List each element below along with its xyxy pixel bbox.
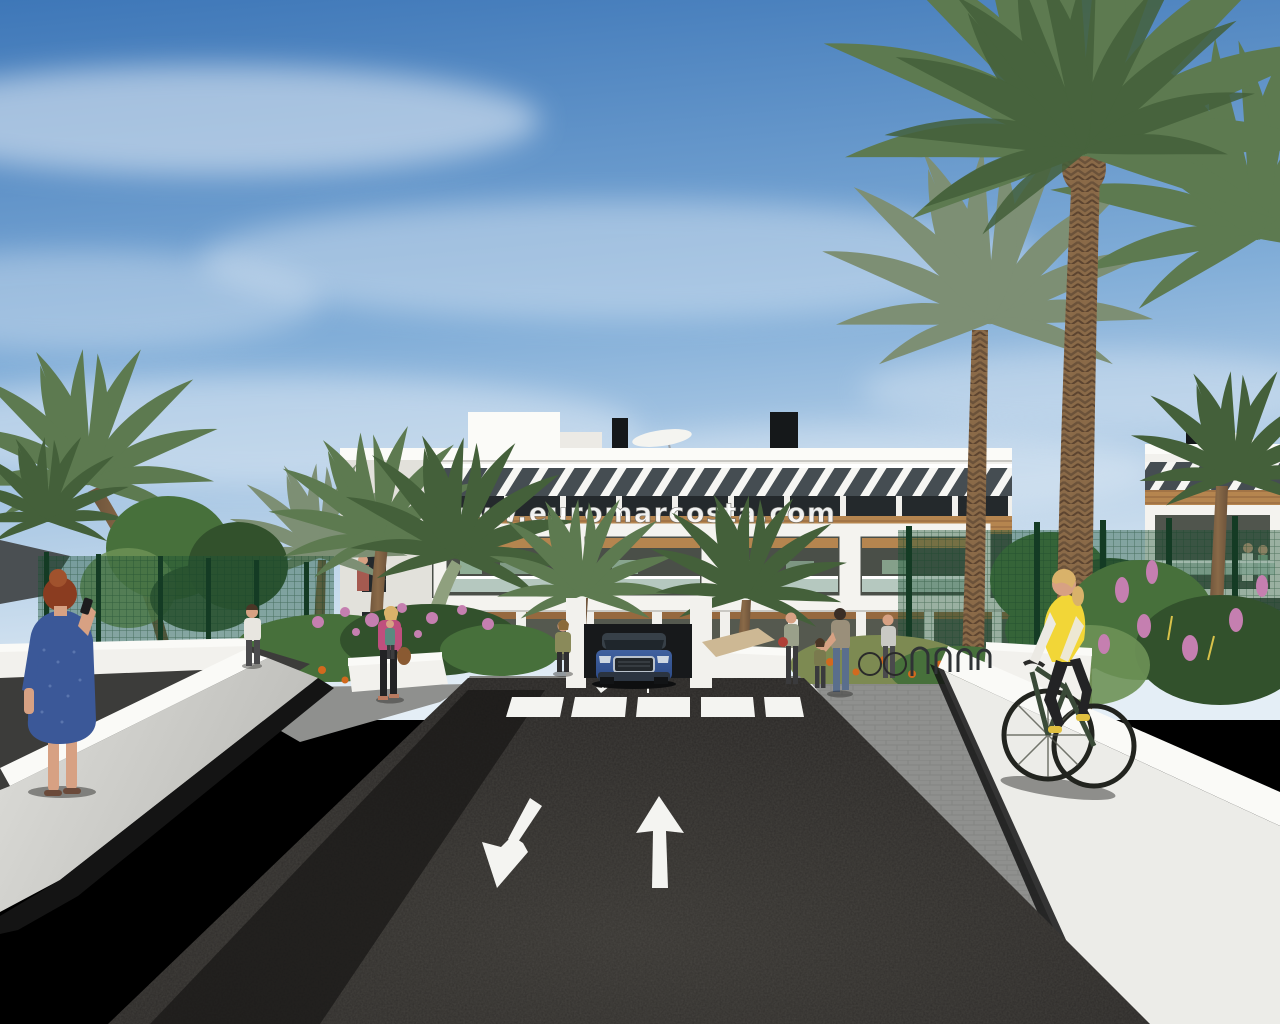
- red-bag: [778, 637, 788, 647]
- handbag: [397, 647, 411, 665]
- car-headlight: [599, 656, 611, 663]
- roof-stair-tower: [468, 412, 560, 454]
- car-grille: [614, 657, 654, 672]
- suv-car: [592, 633, 676, 689]
- scene-canvas: www.euromarcosta.com: [0, 0, 1280, 1024]
- chimney: [770, 412, 798, 454]
- render-photo: www.euromarcosta.com: [0, 0, 1280, 1024]
- car-headlight: [657, 656, 669, 663]
